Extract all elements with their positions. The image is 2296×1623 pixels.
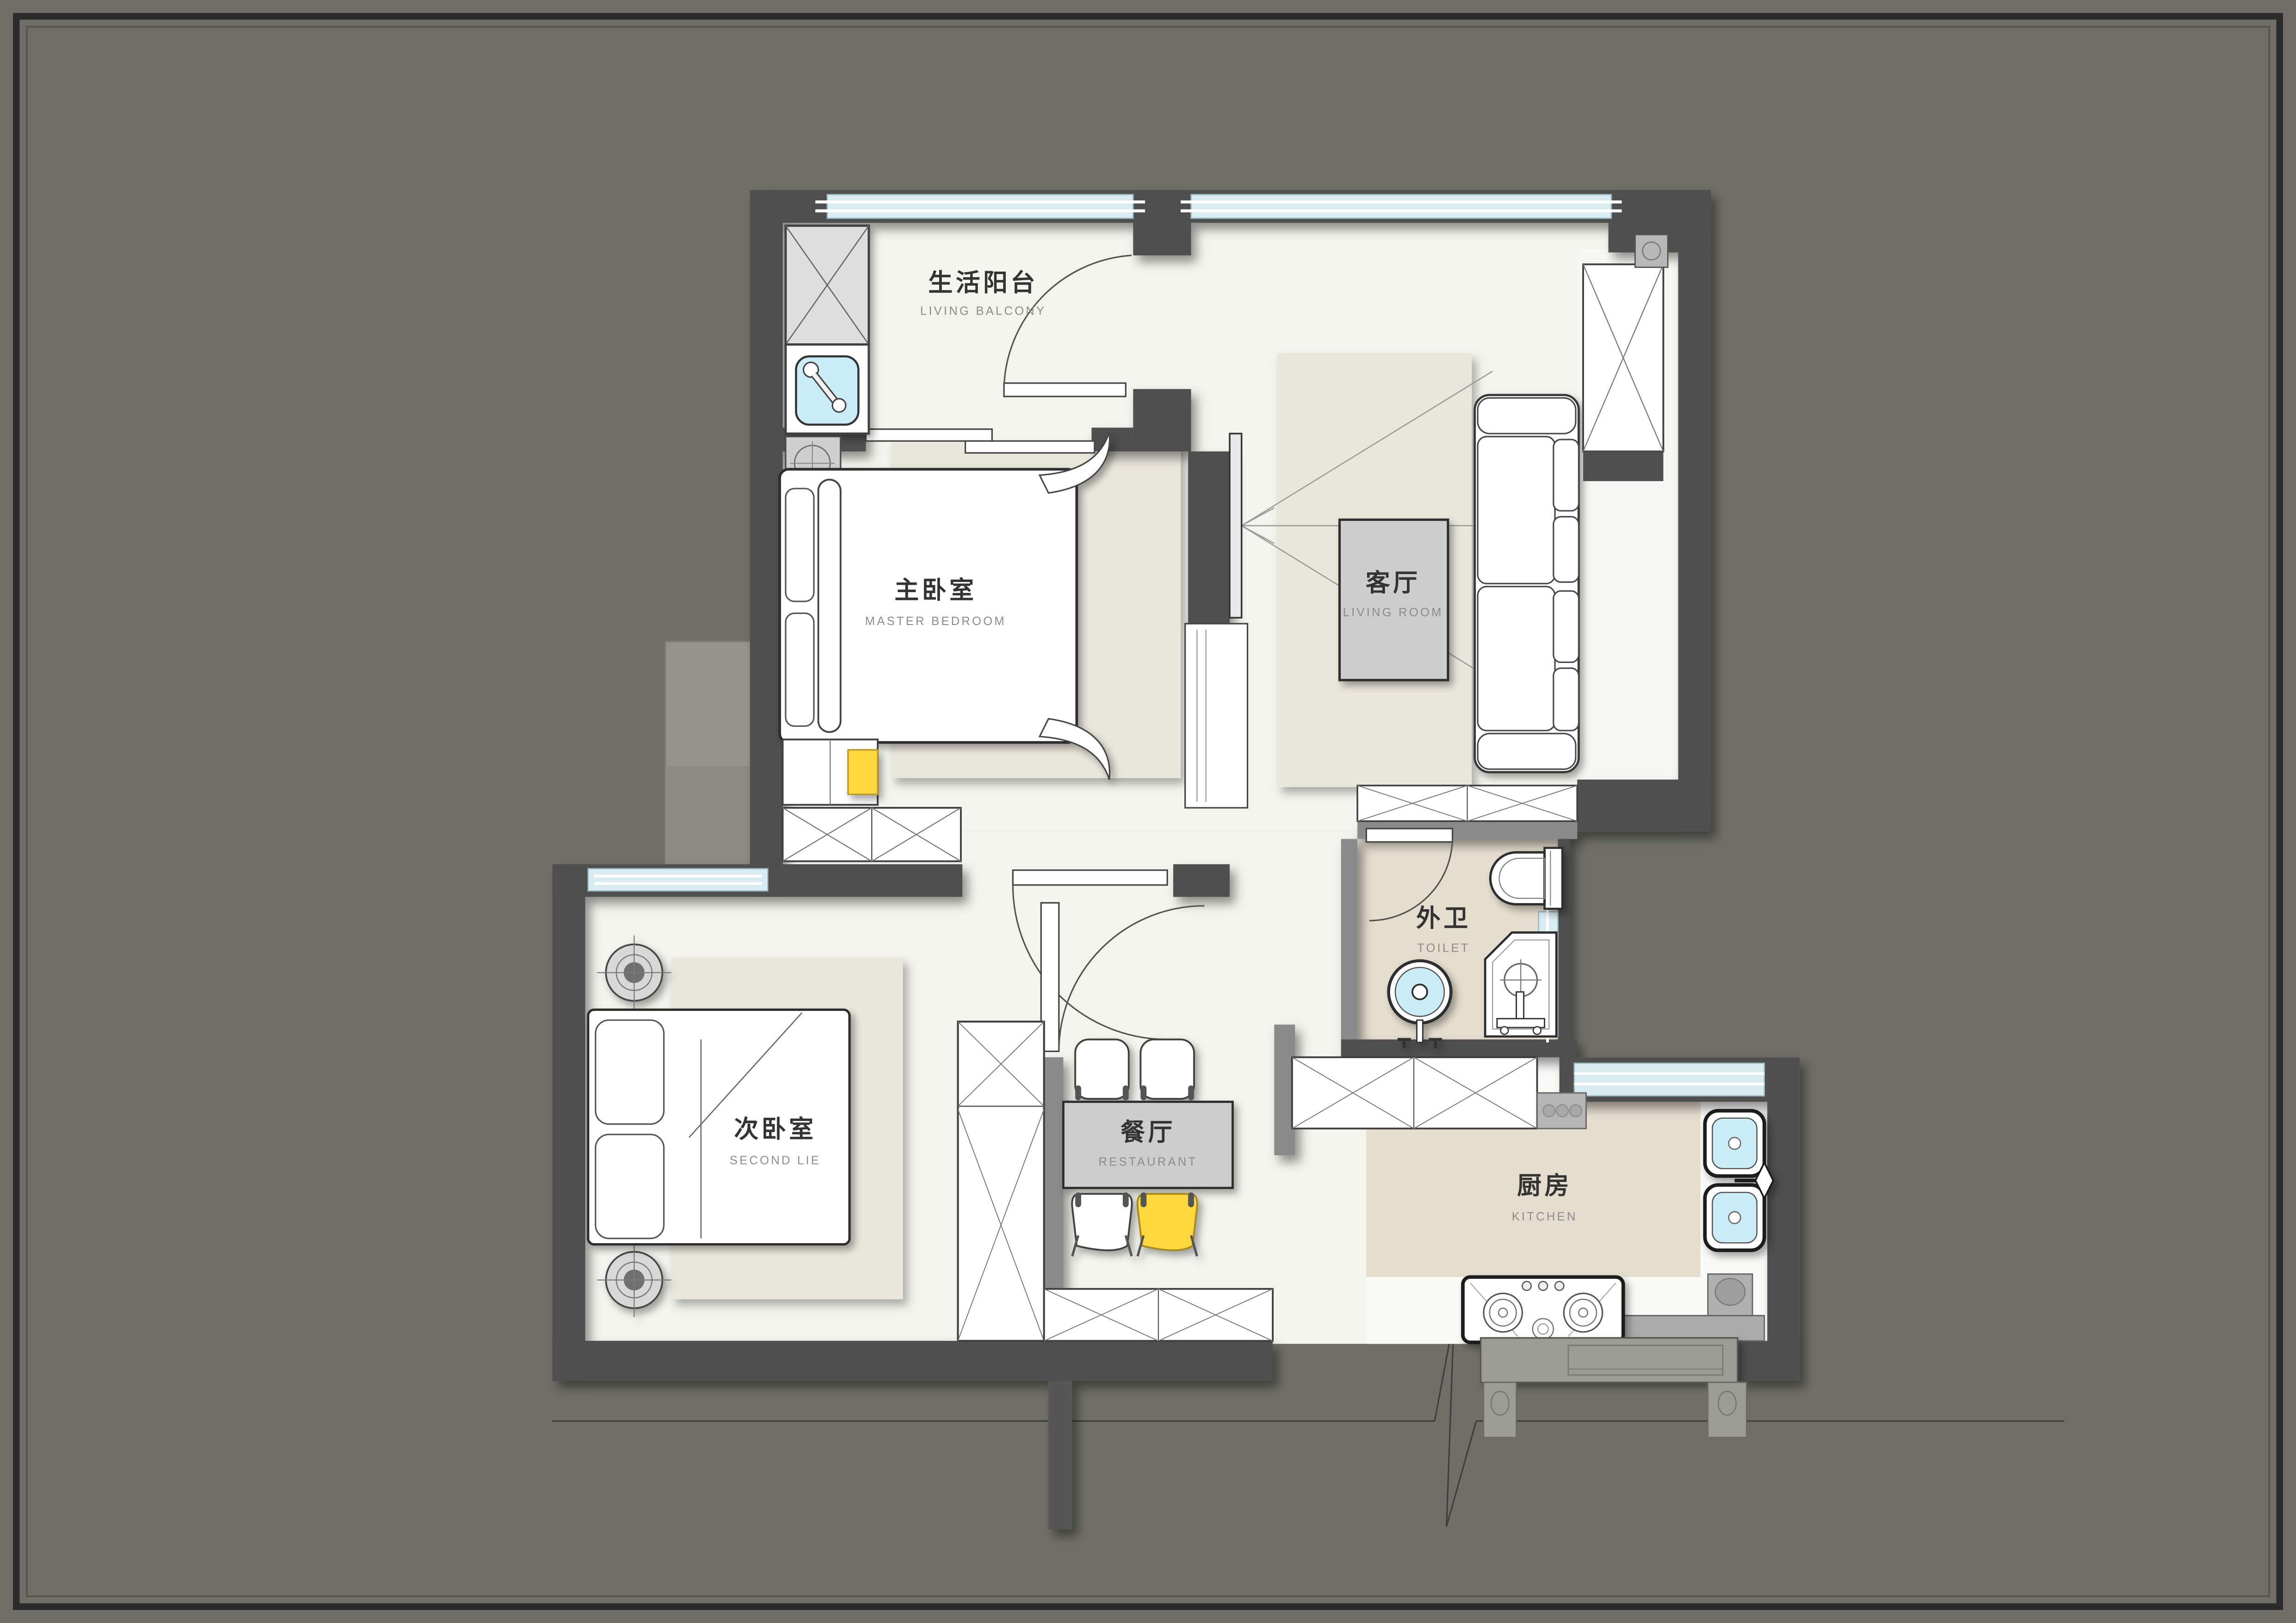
- pillow: [786, 489, 814, 601]
- ac-unit-icon: [1635, 235, 1668, 267]
- label-dining-en: RESTAURANT: [1099, 1155, 1198, 1168]
- yellow-accent-item: [848, 750, 878, 794]
- storage-cabinet-icon: [1583, 264, 1663, 481]
- label-toilet-zh: 外卫: [1416, 905, 1471, 932]
- wall-toilet-topright: [1577, 780, 1711, 831]
- chair-icon: [1075, 1040, 1129, 1101]
- label-kitchen-zh: 厨房: [1517, 1172, 1572, 1199]
- label-kitchen-en: KITCHEN: [1512, 1210, 1578, 1223]
- chair-icon: [1072, 1192, 1132, 1256]
- sofa-seat: [1478, 587, 1555, 731]
- wall-bottom-right: [1738, 1341, 1800, 1381]
- wall-toilet-bottom: [1341, 1040, 1574, 1058]
- label-living-balcony-zh: 生活阳台: [928, 269, 1038, 297]
- bed-icon: [780, 432, 1109, 780]
- wall-tv: [1188, 452, 1230, 624]
- shoe-cabinet-icon: [1044, 1289, 1273, 1341]
- floor-plan-svg: 生活阳台 LIVING BALCONY 主卧室 MASTER BEDROOM 客…: [0, 0, 2296, 1623]
- pillow: [595, 1134, 664, 1239]
- label-second-bedroom-zh: 次卧室: [734, 1115, 817, 1143]
- wall-right-outer: [1678, 249, 1711, 802]
- floor-plan-sheet: 生活阳台 LIVING BALCONY 主卧室 MASTER BEDROOM 客…: [0, 0, 2296, 1623]
- sofa-pillow: [1553, 440, 1579, 511]
- entry-platform: [1481, 1338, 1738, 1382]
- label-master-bedroom-zh: 主卧室: [894, 576, 977, 604]
- label-living-room-en: LIVING ROOM: [1343, 606, 1443, 619]
- wall-master-bottom: [783, 864, 962, 897]
- second-bedroom-window: [588, 869, 767, 891]
- label-dining-zh: 餐厅: [1120, 1119, 1176, 1146]
- sofa-icon: [1475, 395, 1579, 772]
- wall-kitchen-right: [1767, 1057, 1800, 1344]
- wall-balcony-divider: [1092, 427, 1133, 451]
- pillow: [786, 613, 814, 726]
- sliding-door-leaf: [965, 441, 1095, 453]
- sofa-pillow: [1553, 591, 1579, 662]
- hall-cabinet-icon: [958, 1022, 1044, 1341]
- sofa-seat: [1478, 437, 1555, 584]
- sofa-pillow: [1553, 517, 1579, 582]
- balcony-door-leaf: [1004, 383, 1126, 396]
- label-living-balcony-en: LIVING BALCONY: [920, 304, 1046, 317]
- entry-column: [1708, 1382, 1746, 1437]
- label-second-bedroom-en: SECOND LIE: [730, 1154, 821, 1167]
- sliding-door-leaf: [866, 429, 992, 441]
- wall-toilet-left: [1341, 839, 1357, 1057]
- wardrobe-icon: [783, 808, 961, 861]
- chair-icon: [1140, 1040, 1194, 1101]
- headboard: [818, 480, 841, 732]
- label-living-room-zh: 客厅: [1366, 569, 1421, 596]
- wall-stub-below: [1048, 1381, 1072, 1530]
- tv-icon: [1230, 434, 1242, 618]
- entry-column: [1484, 1382, 1516, 1437]
- kitchen-window: [1574, 1063, 1764, 1096]
- sofa-armrest: [1478, 734, 1576, 769]
- tv-cabinet: [1185, 624, 1248, 808]
- toilet-door-leaf: [1366, 829, 1452, 842]
- sofa-armrest: [1478, 398, 1576, 434]
- sofa-pillow: [1553, 668, 1579, 731]
- gas-stove-icon: [1463, 1277, 1623, 1342]
- wall-wing-left: [552, 864, 585, 1381]
- label-toilet-en: TOILET: [1417, 942, 1470, 954]
- wc-icon: [1490, 848, 1562, 909]
- wall-bottom-left: [552, 1341, 1273, 1381]
- label-master-bedroom-en: MASTER BEDROOM: [865, 615, 1006, 628]
- living-window: [1191, 194, 1611, 218]
- pillow: [595, 1020, 664, 1124]
- master-door-leaf: [1013, 870, 1167, 885]
- toilet-top-cabinet: [1357, 786, 1577, 821]
- wall-balcony-door-pier: [1133, 389, 1191, 452]
- balcony-window: [827, 194, 1133, 218]
- wall-master-bottom-pier: [1173, 864, 1230, 897]
- balcony-furniture: [786, 226, 869, 434]
- shower-icon: [1485, 933, 1556, 1037]
- wall-left: [750, 190, 783, 897]
- wall-window-pier: [1133, 190, 1191, 255]
- coffee-table-icon: [1340, 520, 1448, 680]
- chair-icon-yellow: [1138, 1192, 1197, 1256]
